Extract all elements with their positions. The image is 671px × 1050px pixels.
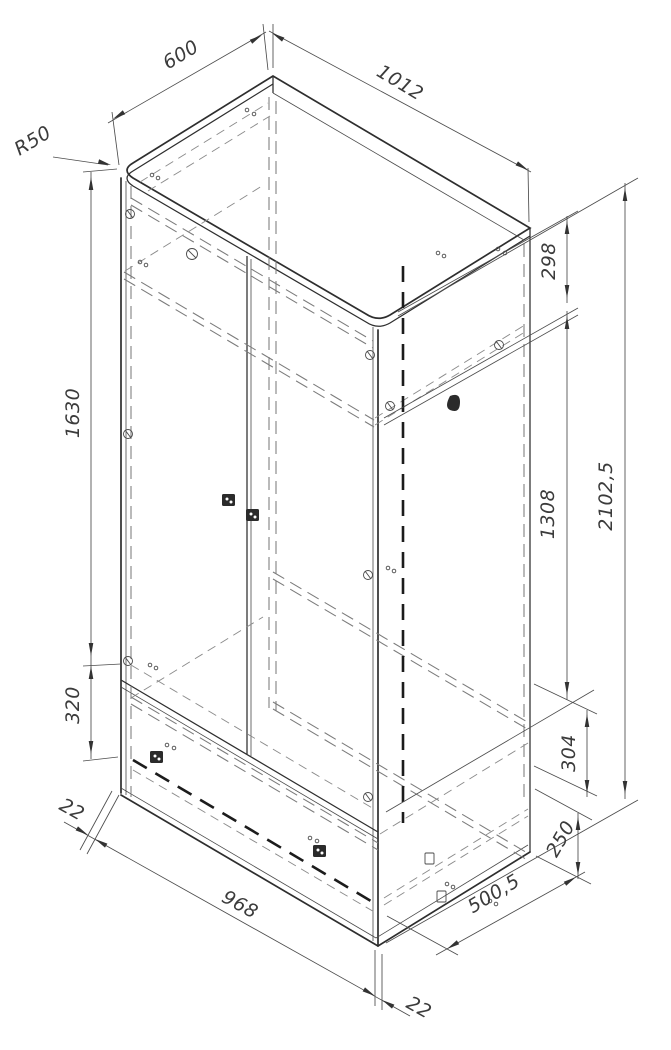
top-panel-thickness-edge <box>127 84 530 326</box>
cabinet-structure <box>121 76 530 946</box>
bottom-right-depth-edge <box>378 852 530 946</box>
dim-left-thickness-label: 22 <box>56 794 89 825</box>
hardware-fittings <box>124 108 507 906</box>
dim-left-side-height-label: 1630 <box>62 388 84 438</box>
screw-marks <box>138 108 507 906</box>
bottom-front-edge <box>121 795 378 946</box>
wardrobe-isometric-drawing: 600 1012 R50 1630 320 22 968 22 <box>0 0 671 1050</box>
mid-shelf-top-hidden <box>131 665 374 809</box>
mounting-brackets <box>150 395 460 902</box>
dim-bottom-thickness-label: 22 <box>403 992 436 1023</box>
dim-door-section-height-label: 1308 <box>537 489 559 539</box>
technical-drawing-page: 600 1012 R50 1630 320 22 968 22 <box>0 0 671 1050</box>
top-panel-outline <box>127 76 530 318</box>
dim-corner-radius: R50 <box>11 121 111 165</box>
dim-left-side-height: 1630 <box>62 169 121 666</box>
dim-top-shelf-offset-label: 298 <box>538 242 560 280</box>
bottom-left-depth-hidden <box>131 617 263 698</box>
dim-lower-section-height: 320 <box>62 662 118 761</box>
cam-fittings <box>124 210 504 802</box>
top-panel-corner-stubs <box>273 76 530 236</box>
dim-top-width: 1012 <box>269 24 531 222</box>
dim-drawer-box-height-label: 304 <box>558 734 580 772</box>
dim-drawer-box-height: 304 <box>534 684 597 797</box>
dim-corner-radius-label: R50 <box>11 121 56 160</box>
drawer-hidden-edges <box>131 697 378 850</box>
dim-plinth-height: 250 <box>535 789 592 884</box>
upper-shelf-depth-hidden <box>125 186 528 425</box>
dim-bottom-depth: 500,5 <box>387 870 585 955</box>
dim-lower-section-height-label: 320 <box>62 686 84 724</box>
upper-shelf-hidden <box>124 272 374 427</box>
dim-top-width-label: 1012 <box>373 60 427 105</box>
dim-top-depth-label: 600 <box>159 36 203 74</box>
top-panel-inner-back-edge <box>273 93 524 240</box>
top-back-rail-hidden <box>131 198 373 348</box>
dim-top-shelf-offset: 298 <box>384 211 578 425</box>
mid-shelf-back-hidden <box>273 572 529 730</box>
dim-overall-height-label: 2102,5 <box>595 461 617 530</box>
dim-interior-width-label: 968 <box>218 886 262 924</box>
dim-plinth-height-label: 250 <box>542 817 580 861</box>
drawer-runner-hidden <box>133 760 376 904</box>
hidden-edges <box>124 97 529 913</box>
drawer-runner-lower-hidden <box>133 770 376 913</box>
back-left-corner-hidden <box>269 97 276 711</box>
dim-overall-height: 2102,5 <box>386 178 638 943</box>
